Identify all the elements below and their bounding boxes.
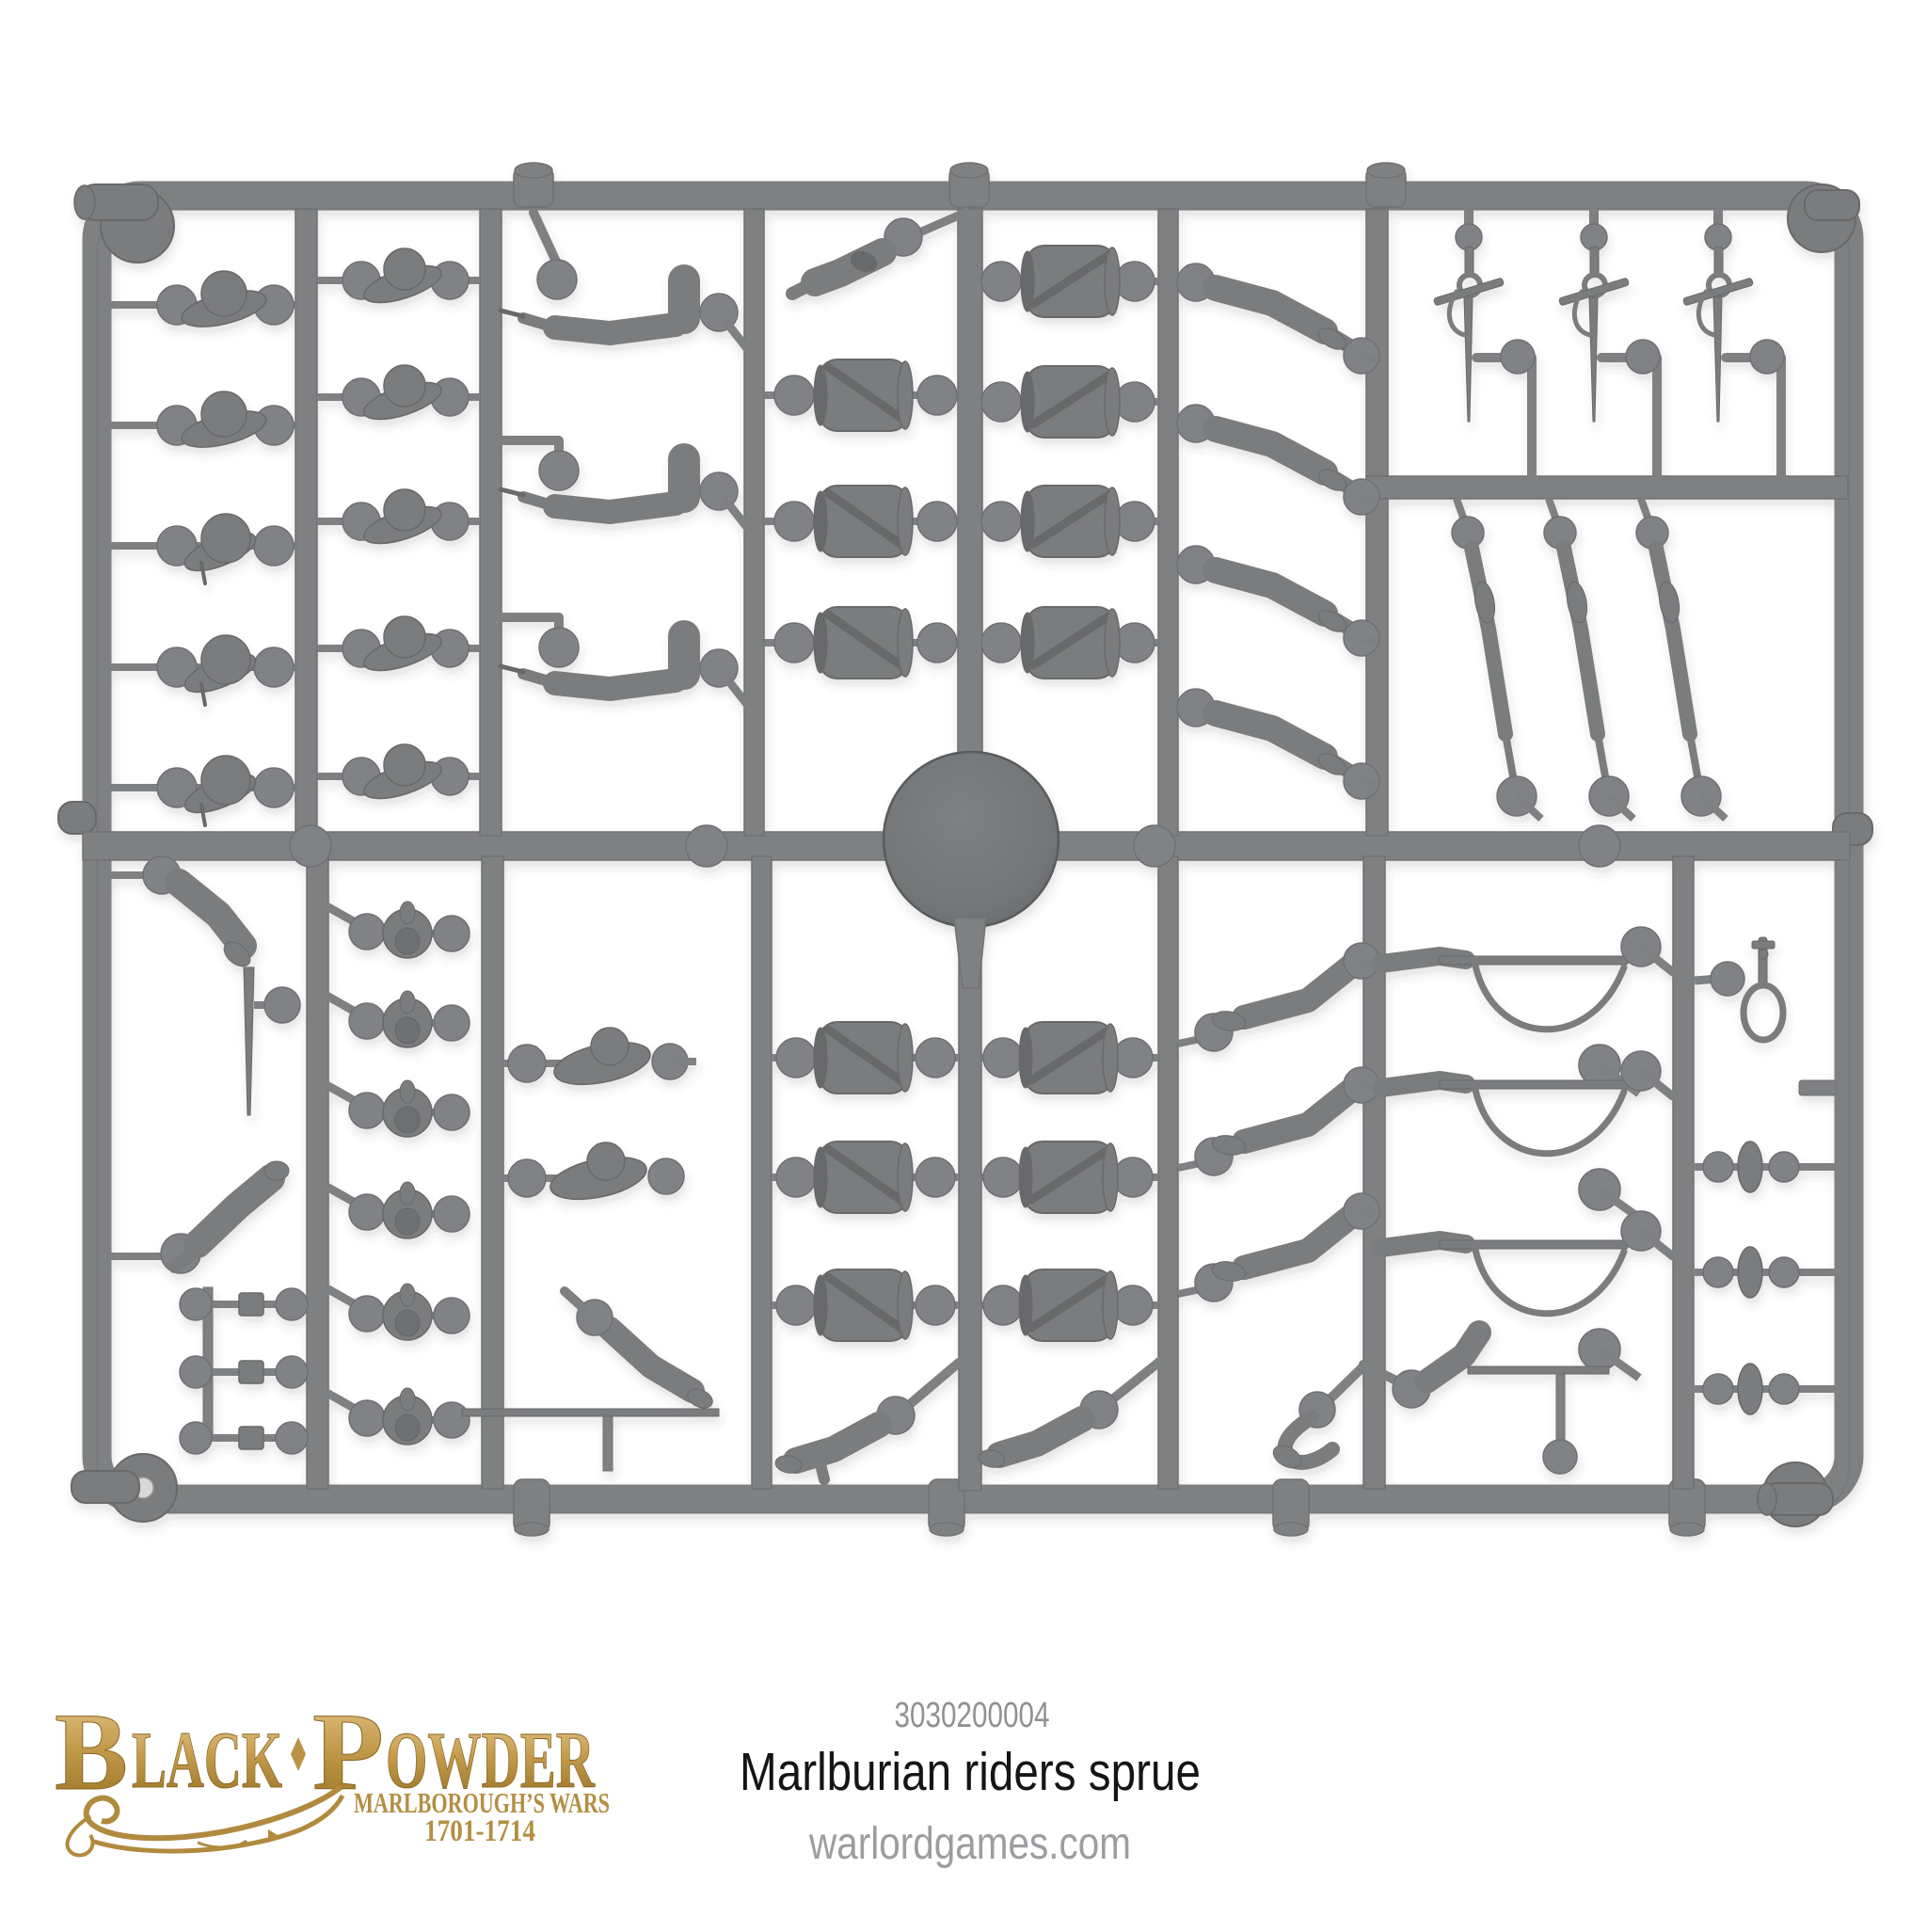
svg-text:B: B (55, 1690, 128, 1813)
svg-text:1701-1714: 1701-1714 (424, 1814, 535, 1848)
svg-text:Marlburian riders sprue: Marlburian riders sprue (740, 1742, 1201, 1802)
svg-text:LACK: LACK (132, 1715, 282, 1805)
svg-text:warlordgames.com: warlordgames.com (808, 1819, 1131, 1869)
svg-text:3030200004: 3030200004 (895, 1696, 1050, 1735)
